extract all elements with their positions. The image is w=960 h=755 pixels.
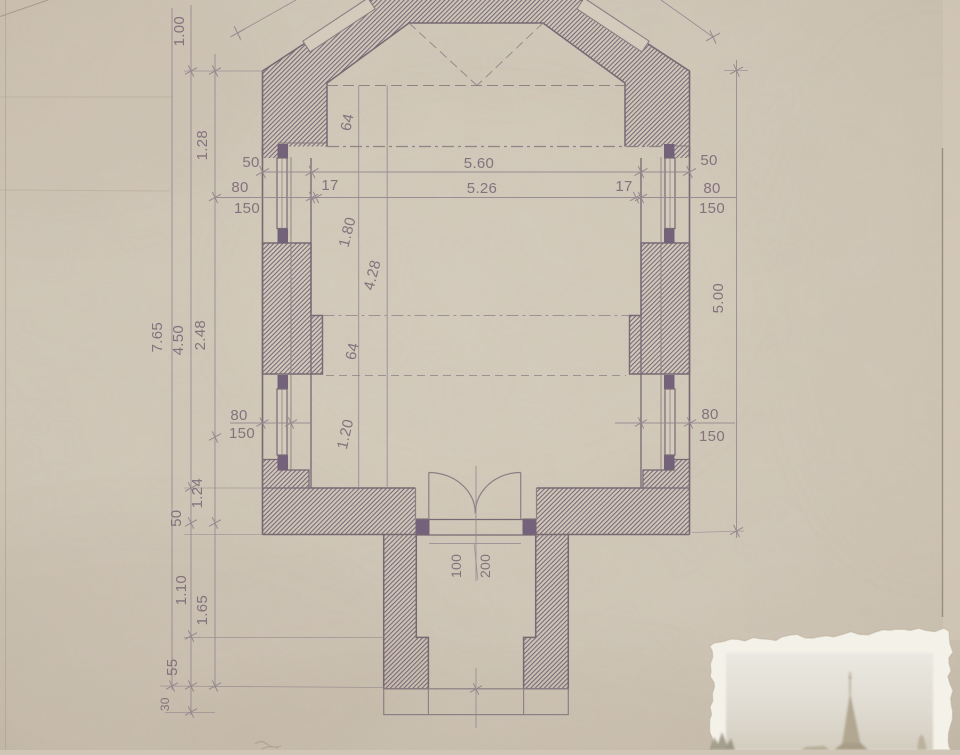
svg-text:50: 50 <box>700 152 717 169</box>
svg-text:64: 64 <box>342 341 362 361</box>
svg-text:4.50: 4.50 <box>170 325 187 355</box>
svg-text:5.00: 5.00 <box>710 283 727 313</box>
svg-text:150: 150 <box>699 200 725 217</box>
svg-text:50: 50 <box>242 154 259 171</box>
svg-text:1.00: 1.00 <box>171 16 188 46</box>
svg-text:7.65: 7.65 <box>149 322 166 352</box>
svg-text:80: 80 <box>231 179 248 196</box>
svg-text:1.10: 1.10 <box>173 575 190 605</box>
svg-text:1.65: 1.65 <box>194 595 211 625</box>
svg-text:1.24: 1.24 <box>189 478 206 508</box>
svg-text:55: 55 <box>164 659 181 676</box>
svg-text:80: 80 <box>701 406 718 423</box>
svg-text:150: 150 <box>229 425 255 442</box>
svg-text:200: 200 <box>477 554 493 578</box>
svg-text:1.28: 1.28 <box>194 130 211 160</box>
svg-text:150: 150 <box>234 200 260 217</box>
svg-text:30: 30 <box>158 697 172 711</box>
svg-text:17: 17 <box>321 177 338 194</box>
svg-text:50: 50 <box>168 510 185 527</box>
svg-text:80: 80 <box>230 407 247 424</box>
svg-text:100: 100 <box>448 554 464 578</box>
svg-text:5.60: 5.60 <box>464 155 494 172</box>
svg-text:80: 80 <box>703 180 720 197</box>
svg-text:2.48: 2.48 <box>192 320 209 350</box>
svg-text:64: 64 <box>337 112 357 132</box>
svg-text:150: 150 <box>699 428 725 445</box>
svg-text:17: 17 <box>615 178 632 195</box>
svg-text:5.26: 5.26 <box>467 180 497 197</box>
